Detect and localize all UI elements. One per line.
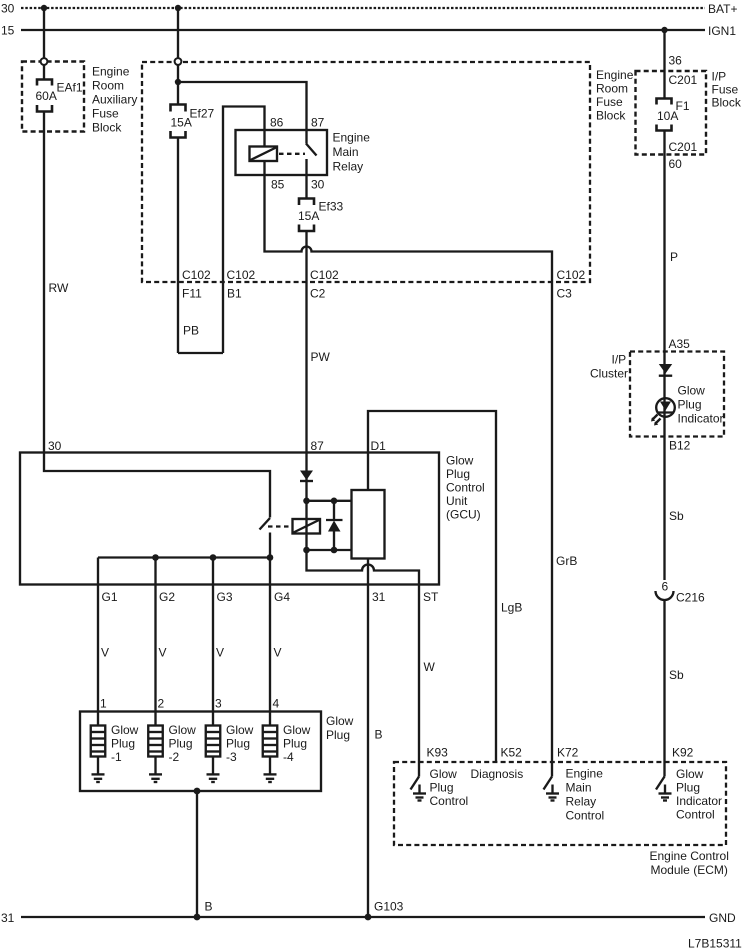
svg-text:Plug: Plug <box>678 398 702 412</box>
svg-text:Control: Control <box>566 809 605 823</box>
svg-text:C201: C201 <box>669 73 698 87</box>
svg-text:RW: RW <box>49 281 69 295</box>
svg-text:3: 3 <box>215 697 222 711</box>
svg-text:IGN1: IGN1 <box>708 24 736 38</box>
svg-text:Plug: Plug <box>226 737 250 751</box>
svg-text:87: 87 <box>311 439 325 453</box>
svg-text:Plug: Plug <box>430 781 454 795</box>
svg-text:Fuse: Fuse <box>92 107 119 121</box>
svg-text:15A: 15A <box>298 209 319 223</box>
svg-text:Glow: Glow <box>226 723 254 737</box>
svg-text:Plug: Plug <box>446 467 470 481</box>
svg-text:30: 30 <box>48 439 62 453</box>
svg-text:Plug: Plug <box>111 737 135 751</box>
svg-text:Sb: Sb <box>669 509 684 523</box>
svg-text:BAT+: BAT+ <box>708 2 737 16</box>
svg-text:A35: A35 <box>669 337 691 351</box>
svg-text:K93: K93 <box>427 746 449 760</box>
svg-text:C102: C102 <box>557 268 586 282</box>
svg-text:15: 15 <box>1 24 15 38</box>
svg-text:Main: Main <box>566 781 592 795</box>
svg-text:Fuse: Fuse <box>712 83 739 97</box>
svg-text:30: 30 <box>311 178 325 192</box>
svg-text:Sb: Sb <box>669 668 684 682</box>
svg-text:Relay: Relay <box>566 795 597 809</box>
svg-text:Block: Block <box>92 121 122 135</box>
svg-text:G4: G4 <box>274 590 290 604</box>
svg-text:Diagnosis: Diagnosis <box>471 767 524 781</box>
svg-text:Plug: Plug <box>169 737 193 751</box>
svg-text:1: 1 <box>100 697 107 711</box>
svg-text:31: 31 <box>1 911 15 925</box>
svg-text:Block: Block <box>712 96 742 110</box>
svg-text:Control: Control <box>446 481 485 495</box>
svg-text:Auxiliary: Auxiliary <box>92 93 137 107</box>
svg-text:B12: B12 <box>669 439 691 453</box>
svg-text:I/P: I/P <box>612 353 627 367</box>
svg-text:V: V <box>159 646 167 660</box>
svg-text:LgB: LgB <box>501 601 522 615</box>
svg-text:B: B <box>375 728 383 742</box>
svg-text:-3: -3 <box>226 750 237 764</box>
svg-text:2: 2 <box>158 697 165 711</box>
svg-text:I/P: I/P <box>712 70 727 84</box>
svg-text:10A: 10A <box>657 109 678 123</box>
svg-text:Glow: Glow <box>676 767 704 781</box>
svg-text:31: 31 <box>372 590 386 604</box>
svg-text:-1: -1 <box>111 750 122 764</box>
svg-text:Plug: Plug <box>676 781 700 795</box>
svg-text:EAf1: EAf1 <box>57 81 83 95</box>
svg-text:Module (ECM): Module (ECM) <box>651 863 728 877</box>
svg-text:Room: Room <box>92 79 124 93</box>
svg-text:Glow: Glow <box>678 384 706 398</box>
svg-text:F11: F11 <box>182 287 202 301</box>
svg-text:Ef33: Ef33 <box>319 200 344 214</box>
svg-text:Glow: Glow <box>111 723 139 737</box>
svg-text:Glow: Glow <box>283 723 311 737</box>
svg-text:60: 60 <box>669 157 683 171</box>
svg-text:Block: Block <box>596 109 626 123</box>
svg-text:C201: C201 <box>669 140 698 154</box>
svg-text:6: 6 <box>662 580 669 594</box>
svg-text:Indicator: Indicator <box>676 794 722 808</box>
svg-text:15A: 15A <box>171 116 192 130</box>
svg-text:Main: Main <box>333 145 359 159</box>
svg-text:PW: PW <box>311 350 331 364</box>
svg-text:G3: G3 <box>217 590 233 604</box>
svg-text:Glow: Glow <box>169 723 197 737</box>
svg-text:K52: K52 <box>501 746 523 760</box>
svg-text:Unit: Unit <box>446 494 468 508</box>
svg-text:B1: B1 <box>227 287 242 301</box>
svg-text:Relay: Relay <box>333 160 364 174</box>
svg-text:K72: K72 <box>557 746 579 760</box>
svg-text:Glow: Glow <box>430 767 458 781</box>
svg-text:C2: C2 <box>310 287 326 301</box>
svg-text:GrB: GrB <box>556 554 577 568</box>
svg-text:C3: C3 <box>557 287 573 301</box>
svg-text:87: 87 <box>311 116 325 130</box>
svg-text:V: V <box>274 646 282 660</box>
svg-text:V: V <box>101 646 109 660</box>
svg-text:C102: C102 <box>182 268 211 282</box>
svg-text:Control: Control <box>676 808 715 822</box>
svg-text:Fuse: Fuse <box>596 95 623 109</box>
svg-text:K92: K92 <box>672 746 694 760</box>
svg-text:Glow: Glow <box>326 714 354 728</box>
svg-text:G2: G2 <box>159 590 175 604</box>
svg-text:Plug: Plug <box>283 737 307 751</box>
svg-text:-4: -4 <box>283 750 294 764</box>
svg-text:P: P <box>670 250 678 264</box>
svg-text:L7B15311: L7B15311 <box>688 937 742 951</box>
svg-text:ST: ST <box>423 590 439 604</box>
svg-text:D1: D1 <box>371 439 387 453</box>
svg-text:Room: Room <box>596 82 628 96</box>
svg-text:(GCU): (GCU) <box>446 508 481 522</box>
svg-text:Engine Control: Engine Control <box>650 849 729 863</box>
svg-text:85: 85 <box>271 178 285 192</box>
svg-text:Engine: Engine <box>596 68 634 82</box>
svg-text:Glow: Glow <box>446 454 474 468</box>
svg-text:V: V <box>216 646 224 660</box>
svg-text:Cluster: Cluster <box>590 367 628 381</box>
svg-text:86: 86 <box>270 116 284 130</box>
svg-text:4: 4 <box>273 697 280 711</box>
svg-text:Engine: Engine <box>92 65 130 79</box>
svg-text:Plug: Plug <box>326 728 350 742</box>
svg-text:G103: G103 <box>374 900 404 914</box>
svg-text:Control: Control <box>430 794 469 808</box>
svg-text:36: 36 <box>669 54 683 68</box>
svg-text:C102: C102 <box>227 268 256 282</box>
svg-text:60A: 60A <box>36 89 57 103</box>
svg-text:30: 30 <box>1 2 15 16</box>
svg-text:C216: C216 <box>676 591 705 605</box>
svg-text:PB: PB <box>183 324 199 338</box>
svg-text:W: W <box>424 660 436 674</box>
svg-text:B: B <box>205 900 213 914</box>
svg-text:Engine: Engine <box>566 767 604 781</box>
svg-text:Indicator: Indicator <box>678 412 724 426</box>
svg-text:G1: G1 <box>102 590 118 604</box>
svg-text:Engine: Engine <box>333 131 371 145</box>
svg-text:Ef27: Ef27 <box>190 107 215 121</box>
svg-text:C102: C102 <box>310 268 339 282</box>
svg-text:-2: -2 <box>169 750 180 764</box>
svg-text:GND: GND <box>709 911 736 925</box>
